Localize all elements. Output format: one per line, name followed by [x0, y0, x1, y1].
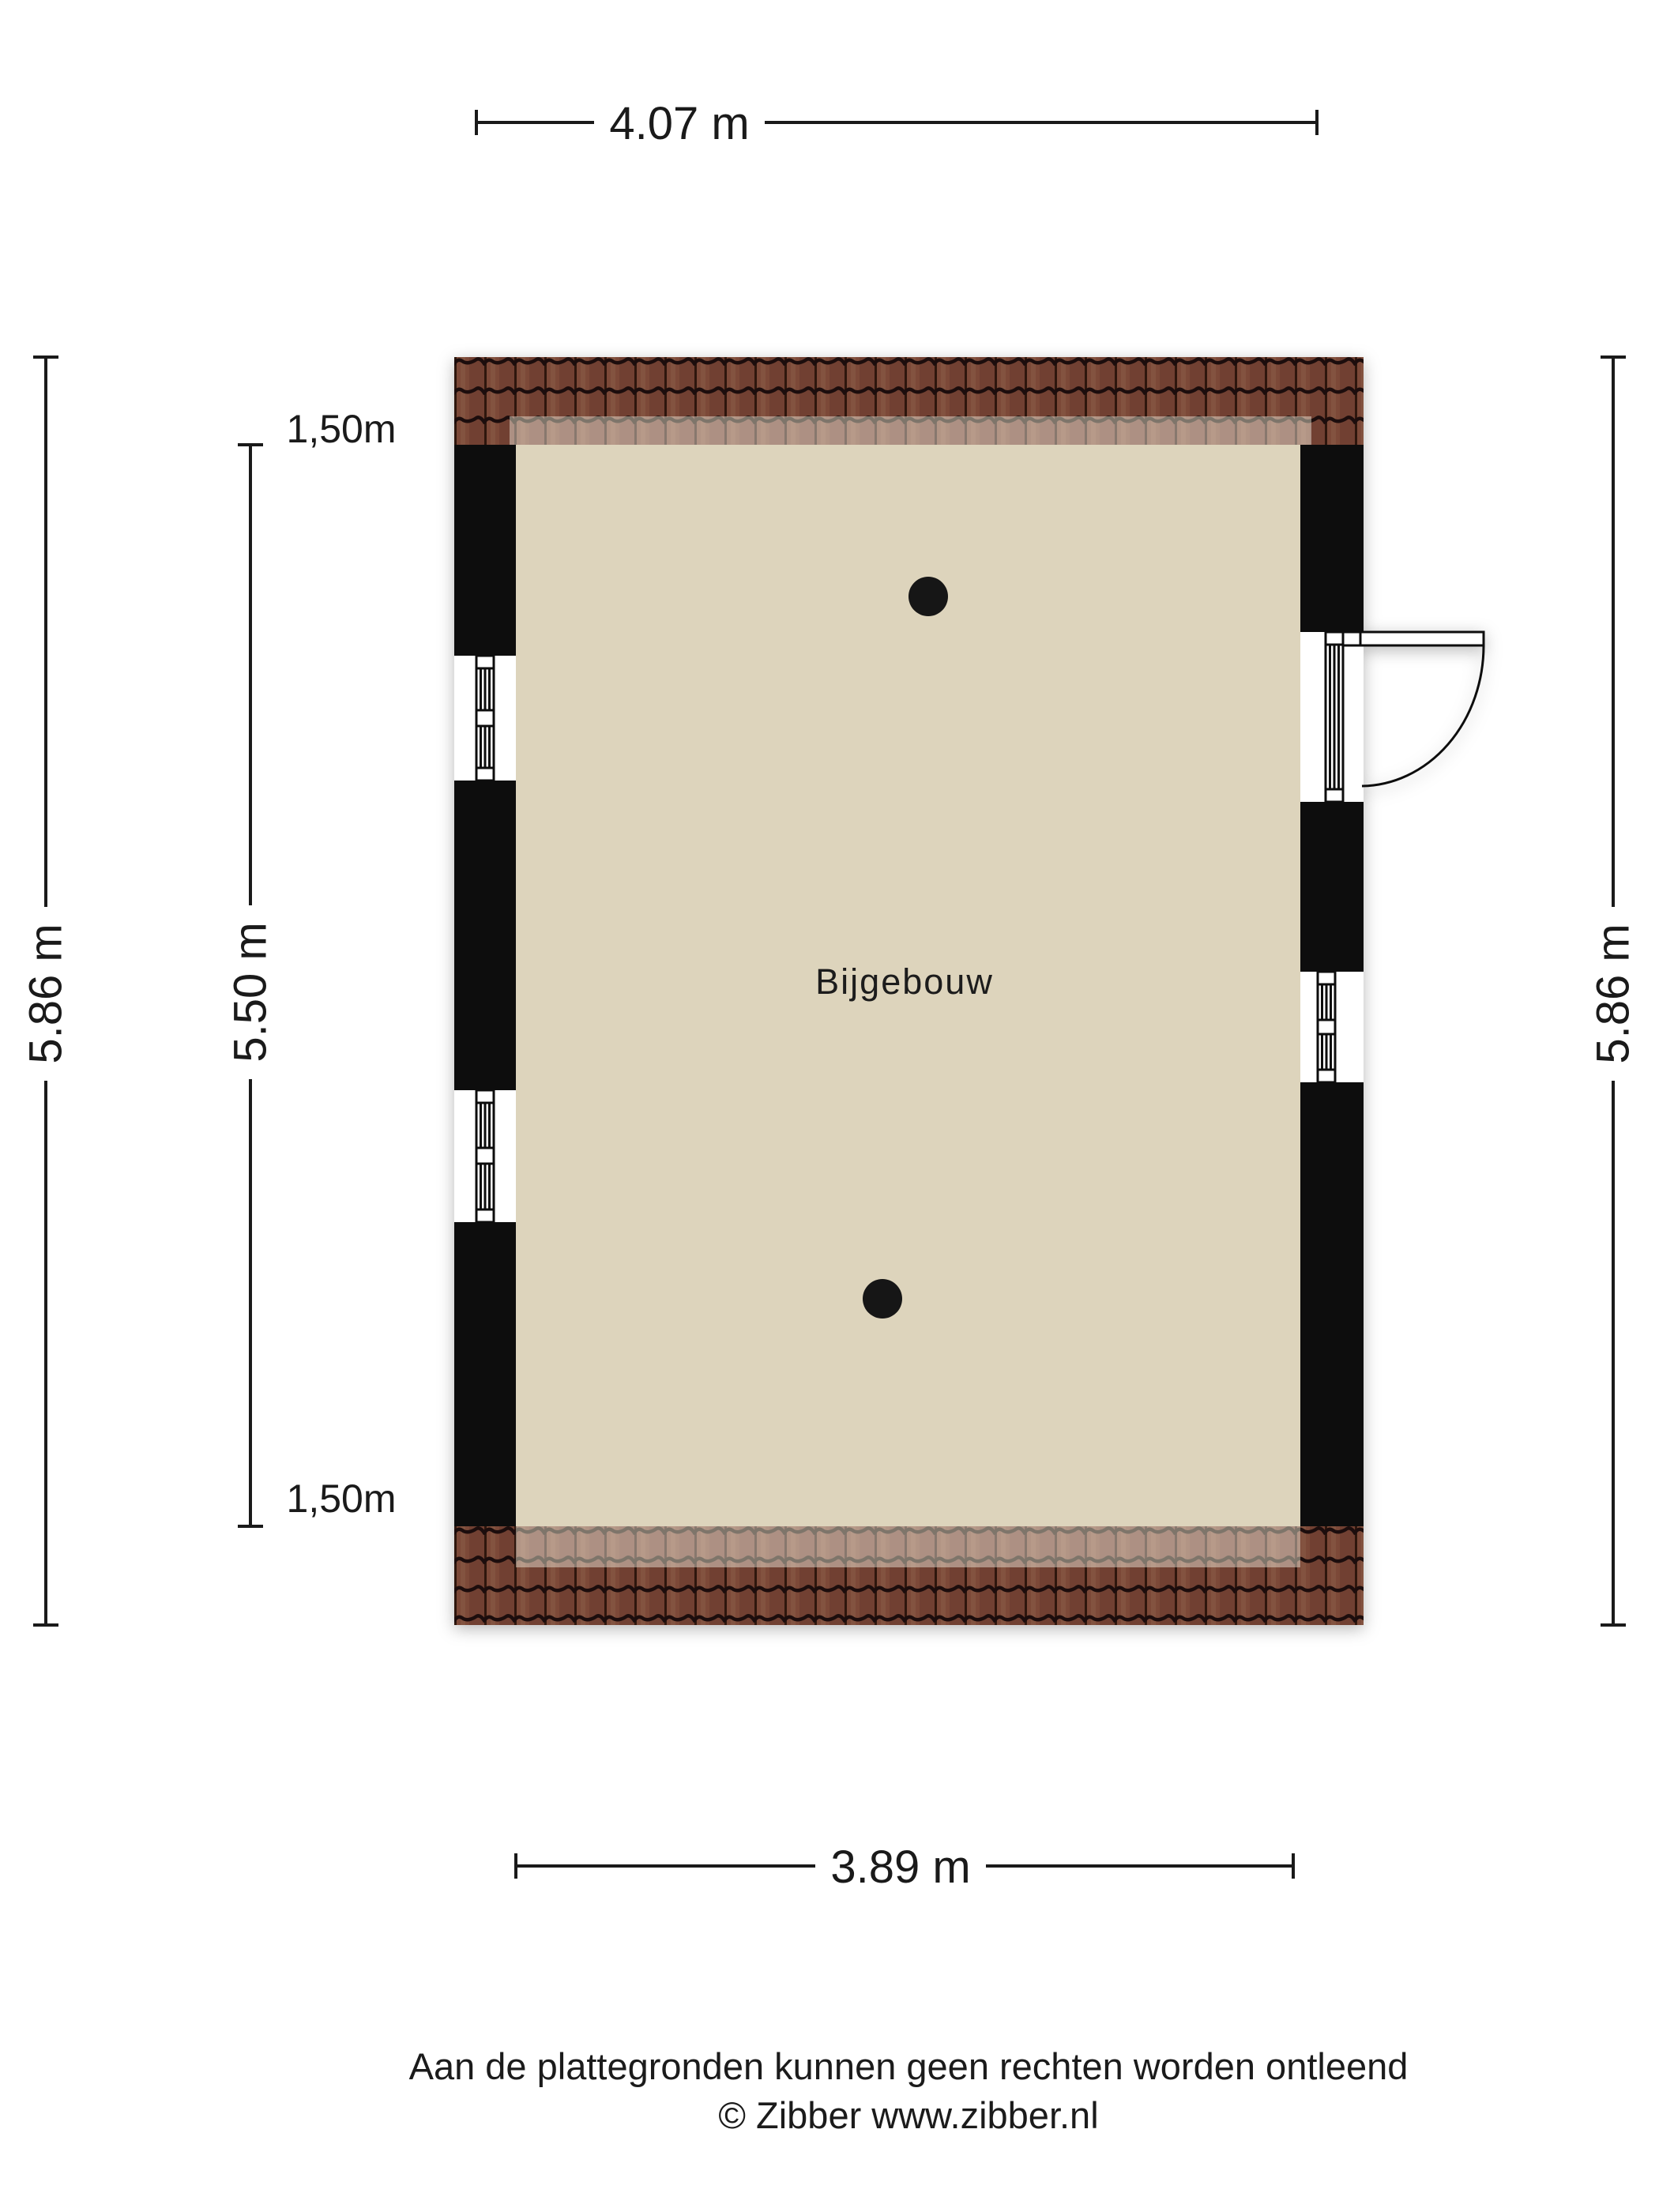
clearance-top-label: 1,50m	[287, 407, 397, 451]
dimension-right: 5.86 m	[1588, 357, 1639, 1625]
room-label: Bijgebouw	[815, 961, 994, 1002]
dimension-bottom: 3.89 m	[516, 1841, 1293, 1893]
floorplan: Bijgebouw	[454, 357, 1484, 1625]
dimension-right-label: 5.86 m	[1588, 924, 1639, 1063]
door-right	[1300, 632, 1484, 802]
column-top	[908, 577, 948, 616]
window-right	[1300, 972, 1364, 1082]
door-swing-arc	[1362, 645, 1484, 786]
footer-disclaimer: Aan de plattegronden kunnen geen rechten…	[409, 2045, 1409, 2087]
dimension-top-label: 4.07 m	[609, 98, 749, 149]
dimension-left-inner-label: 5.50 m	[225, 922, 276, 1062]
dimension-top: 4.07 m	[476, 98, 1317, 149]
clearance-bottom-label: 1,50m	[287, 1477, 397, 1521]
column-bottom	[863, 1279, 902, 1319]
roof-overlap-top	[510, 416, 1311, 445]
roof-overlap-bottom	[516, 1526, 1300, 1567]
door-leaf	[1360, 632, 1484, 645]
dimension-left-outer-label: 5.86 m	[21, 924, 72, 1063]
dimension-left-inner: 5.50 m 1,50m 1,50m	[225, 407, 397, 1526]
dimension-left-outer: 5.86 m	[21, 357, 72, 1625]
dimension-bottom-label: 3.89 m	[830, 1841, 970, 1893]
window-left-top	[454, 656, 516, 781]
floorplan-page: 4.07 m 3.89 m 5.86 m 5.50 m 1,50m 1,50m …	[0, 0, 1659, 2212]
footer: Aan de plattegronden kunnen geen rechten…	[409, 2045, 1409, 2136]
window-left-bottom	[454, 1090, 516, 1222]
footer-credit: © Zibber www.zibber.nl	[718, 2094, 1098, 2136]
wall-left	[454, 445, 516, 1526]
